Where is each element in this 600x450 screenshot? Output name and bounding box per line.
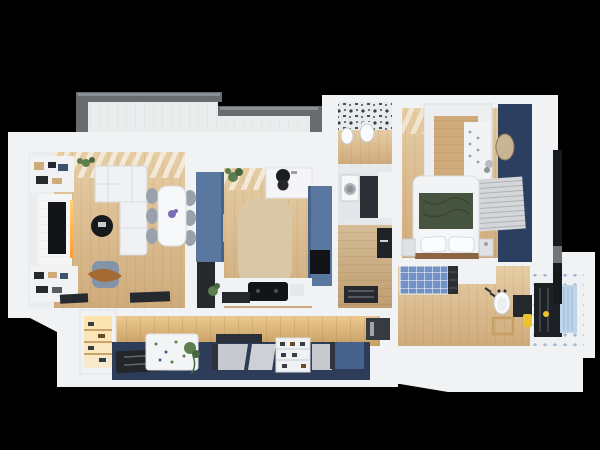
table-flowers-detail <box>174 209 178 213</box>
doormat <box>130 291 170 302</box>
shoe-rack <box>276 338 310 372</box>
dark-mirror-cabinet <box>513 295 532 317</box>
tap <box>504 290 507 293</box>
pillow <box>449 236 475 252</box>
toilet <box>360 124 374 142</box>
lit-closet <box>80 310 116 374</box>
exterior-edge <box>553 150 562 304</box>
wall-cabinet-handle <box>380 240 388 242</box>
blue-box-edge <box>330 342 335 369</box>
coffee-table-decor <box>98 222 106 227</box>
utility-dark-floor <box>360 176 378 218</box>
nightstand-right <box>479 239 493 256</box>
dark-backsplash <box>197 262 215 308</box>
kitchen-mat <box>222 292 250 303</box>
living-room <box>28 152 196 308</box>
gray-mat <box>248 344 276 370</box>
led-strip <box>70 200 73 258</box>
round-mirror <box>496 134 514 160</box>
dining-chair <box>146 228 158 244</box>
cooktop <box>248 282 288 301</box>
pillow <box>421 236 447 253</box>
gray-mat-small <box>312 344 332 370</box>
dark-hall-cabinet <box>366 318 390 340</box>
sink-basin <box>497 297 507 312</box>
kitchen-rug <box>238 198 292 286</box>
dining-chair <box>146 208 158 224</box>
nightstand-left <box>402 239 415 256</box>
tv-screen <box>48 202 66 254</box>
bed <box>413 176 479 259</box>
blue-tiled-tub <box>400 266 448 294</box>
headboard <box>415 253 479 259</box>
dining-set <box>146 186 196 246</box>
counter-sink <box>290 284 304 296</box>
oven <box>310 250 330 274</box>
duvet-fold <box>419 229 473 238</box>
balcony-parapet-top-face <box>78 93 220 96</box>
gray-mat <box>214 344 248 370</box>
yellow-towel <box>523 314 532 327</box>
corridor-mat <box>344 286 378 303</box>
floor-plan-svg: 3D rendered apartment floor plan, top-do… <box>0 0 600 450</box>
storage-bench <box>146 334 200 374</box>
dark-cabinet-slit <box>370 322 374 336</box>
doormat <box>60 293 88 303</box>
green-blanket <box>419 193 473 231</box>
exterior-dark-sliver <box>553 150 562 304</box>
dining-chair <box>146 188 158 204</box>
cooktop-burner <box>274 289 278 293</box>
washer-drum-inner <box>347 186 354 193</box>
shelf-unit-top <box>30 156 74 192</box>
blue-storage-box <box>334 342 364 369</box>
kitchen <box>196 168 332 308</box>
round-sink-bowl <box>278 180 289 191</box>
bidet <box>341 128 353 144</box>
wc-divider-wall <box>338 164 392 172</box>
utility-wall <box>338 218 392 225</box>
striped-curtain <box>476 176 526 231</box>
exterior-gray-chunk <box>553 246 562 263</box>
floor-plan-render: 3D rendered apartment floor plan, top-do… <box>0 0 600 450</box>
gray-mat-edge <box>212 344 218 370</box>
cooktop-burner <box>256 289 260 293</box>
wall-cabinet <box>377 228 392 258</box>
metal-decor-small <box>484 167 490 173</box>
wardrobe <box>424 104 492 184</box>
corridor <box>338 225 392 308</box>
nightstand-lamp <box>484 242 488 246</box>
faucet <box>291 171 297 174</box>
metal-decor <box>485 160 493 168</box>
hallway <box>80 310 390 380</box>
bedroom <box>402 104 532 262</box>
hallway-step-mat <box>216 334 262 343</box>
bottom-left-cutout <box>0 318 57 387</box>
balcony-parapet-right-top-face <box>220 107 318 110</box>
tap <box>498 290 501 293</box>
shower-yellow-accent <box>543 311 549 317</box>
bathroom-partition <box>458 262 496 284</box>
